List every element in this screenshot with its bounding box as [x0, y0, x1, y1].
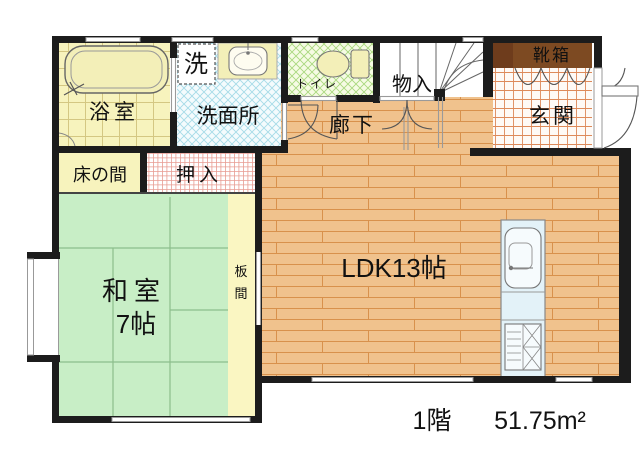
washroom-label: 洗面所	[197, 105, 260, 128]
entrance-column	[493, 43, 513, 68]
closet-label: 押入	[176, 164, 222, 186]
window-bay-left	[28, 259, 34, 355]
window-laundry	[172, 38, 213, 42]
tokonoma-label: 床の間	[73, 165, 127, 185]
entrance-door-leaf	[602, 86, 638, 96]
toilet-fixture	[317, 50, 369, 78]
japanese-room-size: 7帖	[116, 309, 156, 339]
toilet-label: トイレ	[296, 77, 338, 91]
storage-label: 物入	[392, 73, 432, 96]
window-stair	[463, 38, 483, 42]
window-ldk-1	[312, 378, 473, 382]
entrance-door-frame	[594, 68, 602, 148]
kitchen-counter	[501, 220, 545, 377]
laundry-label: 洗	[184, 51, 208, 78]
shoe-box-label: 靴箱	[533, 46, 571, 65]
floor-label: 1階	[413, 407, 452, 435]
wood-strip-label-top: 板	[234, 264, 247, 279]
area-label: 51.75m²	[494, 407, 586, 435]
entrance-label: 玄関	[529, 105, 577, 128]
window-toilet	[292, 38, 318, 42]
window-japanese-room	[112, 418, 250, 422]
ldk-label: LDK13帖	[341, 253, 447, 283]
floor-plan-drawing: 浴室 洗 洗面所 トイレ 物入 靴箱 玄関 廊下 床の間 押入 和室 7帖 板 …	[0, 0, 640, 452]
window-ldk-2	[556, 378, 592, 382]
window-bath	[86, 38, 140, 42]
hallway-label: 廊下	[329, 114, 375, 137]
wood-strip-area	[228, 194, 255, 416]
japanese-room-label: 和室	[102, 276, 166, 306]
floor-plan: 浴室 洗 洗面所 トイレ 物入 靴箱 玄関 廊下 床の間 押入 和室 7帖 板 …	[0, 0, 640, 452]
bathroom-label: 浴室	[89, 101, 139, 124]
wash-basin	[218, 43, 277, 79]
kitchen-sink	[505, 228, 541, 288]
wood-strip-label-bottom: 間	[234, 286, 247, 301]
